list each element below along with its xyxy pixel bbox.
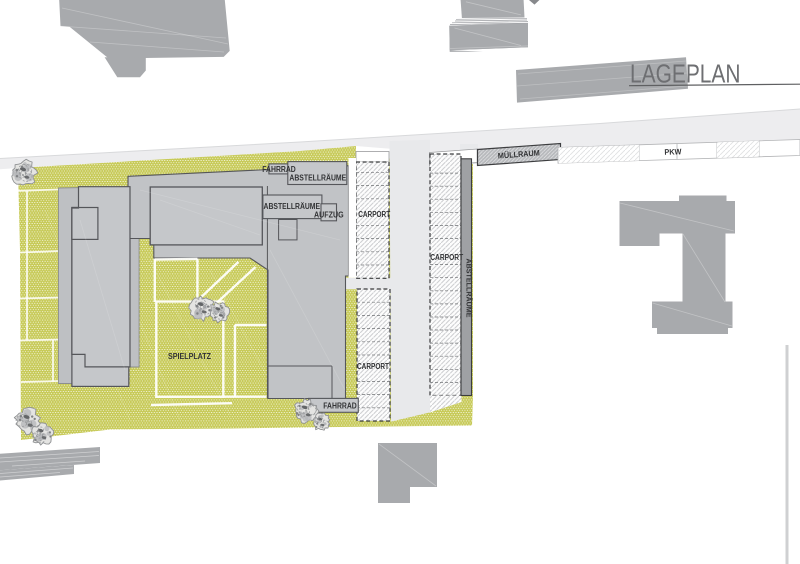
svg-text:ABSTELLRÄUME: ABSTELLRÄUME [465,259,474,318]
svg-text:FAHRRAD: FAHRRAD [323,402,357,411]
svg-text:CARPORT: CARPORT [430,253,463,262]
svg-text:ABSTELLRÄUME: ABSTELLRÄUME [264,202,321,211]
svg-text:AUFZUG: AUFZUG [314,210,344,219]
svg-text:SPIELPLATZ: SPIELPLATZ [168,352,211,361]
svg-text:PKW: PKW [664,147,682,157]
svg-text:CARPORT: CARPORT [357,362,389,371]
svg-text:LAGEPLAN: LAGEPLAN [630,60,741,88]
svg-text:CARPORT: CARPORT [358,210,390,219]
svg-text:ABSTELLRÄUME: ABSTELLRÄUME [289,174,346,183]
